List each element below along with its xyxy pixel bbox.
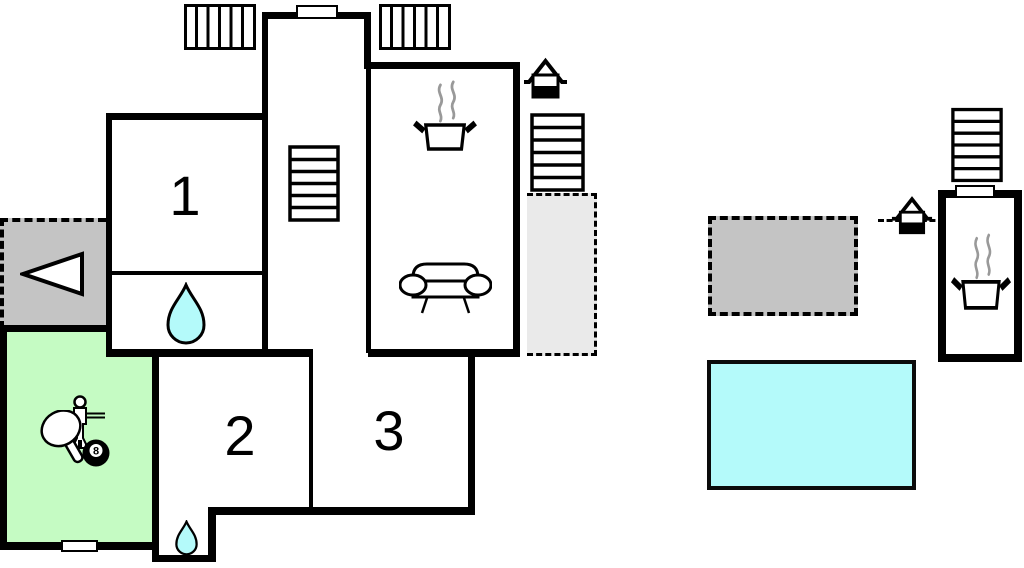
wall <box>262 12 268 353</box>
radiator-icon <box>378 4 452 50</box>
wall <box>112 271 262 275</box>
wall <box>309 355 313 507</box>
exterior-stairs-icon <box>951 107 1003 183</box>
exterior-stairs-icon <box>530 113 585 192</box>
wall <box>106 113 112 356</box>
wall <box>152 353 159 562</box>
wall <box>106 113 267 120</box>
steam-icon <box>975 239 977 278</box>
sofa-icon <box>399 257 492 317</box>
wall <box>364 12 371 69</box>
water-drop-icon <box>165 282 207 346</box>
eight-ball-number: 8 <box>93 446 99 458</box>
room-label-2: 2 <box>215 406 265 466</box>
water-drop-icon <box>174 520 199 556</box>
well-icon <box>891 193 933 237</box>
wall <box>152 555 216 562</box>
wall <box>0 325 112 332</box>
patio-side <box>527 193 597 356</box>
terrace-right <box>708 216 858 316</box>
floor-plan: 1 2 3 <box>0 0 1024 568</box>
window-marker <box>296 5 338 19</box>
wall <box>366 62 371 353</box>
window-marker <box>955 185 995 198</box>
steam-icon <box>452 82 455 118</box>
wall <box>106 349 313 357</box>
swimming-pool <box>707 360 916 490</box>
cooking-pot-icon <box>412 79 478 151</box>
billiard-eight-ball-icon: 8 <box>81 438 111 468</box>
wall <box>208 507 475 515</box>
room-label-3: 3 <box>364 401 414 461</box>
wall <box>513 62 520 356</box>
wall <box>364 62 520 69</box>
staircase-icon <box>288 145 340 222</box>
radiator-icon <box>184 4 256 50</box>
steam-icon <box>439 85 442 121</box>
wall <box>0 325 7 550</box>
wall <box>368 349 520 357</box>
well-icon <box>523 56 568 100</box>
room-label-1: 1 <box>160 166 210 226</box>
steam-icon <box>988 235 990 274</box>
entrance-arrow-icon <box>20 251 85 297</box>
window-marker <box>61 540 98 552</box>
cooking-pot-icon <box>950 232 1012 310</box>
wall <box>468 349 475 515</box>
